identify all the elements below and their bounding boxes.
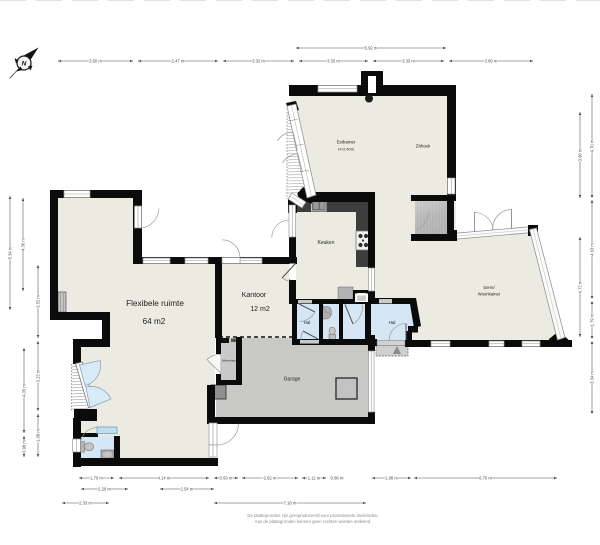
svg-text:3.50 m: 3.50 m — [89, 58, 102, 63]
svg-text:0.98 m: 0.98 m — [21, 440, 26, 453]
svg-text:5.92 m: 5.92 m — [365, 45, 378, 50]
svg-text:0.93 m: 0.93 m — [220, 475, 233, 480]
svg-text:1.79 m: 1.79 m — [589, 313, 594, 326]
svg-text:2.20 m: 2.20 m — [98, 486, 111, 491]
svg-text:H=2.40m: H=2.40m — [338, 147, 354, 152]
svg-text:1.11 m: 1.11 m — [308, 475, 321, 480]
svg-text:6.70 m: 6.70 m — [479, 475, 492, 480]
svg-text:4.70 m: 4.70 m — [589, 139, 594, 152]
svg-text:3.98 m: 3.98 m — [577, 148, 582, 161]
svg-text:2.33 m: 2.33 m — [79, 500, 92, 505]
svg-text:1.98 m: 1.98 m — [385, 475, 398, 480]
svg-text:2.62 m: 2.62 m — [264, 475, 277, 480]
svg-text:Zithoek: Zithoek — [416, 144, 431, 149]
svg-text:Hal: Hal — [389, 320, 396, 325]
svg-text:64 m2: 64 m2 — [143, 317, 166, 326]
svg-text:7.16 m: 7.16 m — [284, 500, 297, 505]
svg-text:1.70 m: 1.70 m — [90, 475, 103, 480]
svg-text:3.32 m: 3.32 m — [252, 58, 265, 63]
svg-text:Kantoor: Kantoor — [242, 292, 267, 299]
svg-text:Flexibele ruimte: Flexibele ruimte — [126, 299, 184, 308]
svg-text:5.34 m: 5.34 m — [7, 246, 12, 259]
svg-text:De plattegronden zijn gereprod: De plattegronden zijn gereproduceerd voo… — [247, 513, 378, 518]
svg-text:4.14 m: 4.14 m — [158, 475, 171, 480]
svg-text:4.36 m: 4.36 m — [20, 238, 25, 251]
svg-text:3.33 m: 3.33 m — [402, 58, 415, 63]
svg-text:3.34 m: 3.34 m — [589, 371, 594, 384]
svg-text:Keuken: Keuken — [318, 240, 335, 246]
svg-text:12 m2: 12 m2 — [250, 306, 270, 313]
svg-text:Woonkamer: Woonkamer — [478, 292, 501, 297]
svg-text:Serre/: Serre/ — [483, 285, 495, 290]
svg-text:Eetkamer: Eetkamer — [337, 140, 356, 145]
svg-text:3.23 m: 3.23 m — [35, 369, 40, 382]
svg-text:2.47 m: 2.47 m — [172, 58, 185, 63]
svg-text:Aan de plattegronden kunnen ge: Aan de plattegronden kunnen geen rechten… — [255, 519, 372, 524]
svg-text:N: N — [22, 61, 27, 68]
svg-text:3.69 m: 3.69 m — [485, 58, 498, 63]
svg-text:Garage: Garage — [284, 377, 301, 383]
svg-text:1.08 m: 1.08 m — [35, 429, 40, 442]
svg-text:3.33 m: 3.33 m — [327, 58, 340, 63]
svg-text:Meterkast: Meterkast — [222, 359, 236, 363]
svg-text:4.72 m: 4.72 m — [577, 280, 582, 293]
svg-text:Hal: Hal — [304, 320, 311, 325]
svg-text:3.52 m: 3.52 m — [35, 295, 40, 308]
svg-text:4.05 m: 4.05 m — [21, 384, 26, 397]
svg-text:4.63 m: 4.63 m — [589, 243, 594, 256]
svg-text:2.54 m: 2.54 m — [181, 486, 194, 491]
svg-text:0.88 m: 0.88 m — [331, 475, 344, 480]
